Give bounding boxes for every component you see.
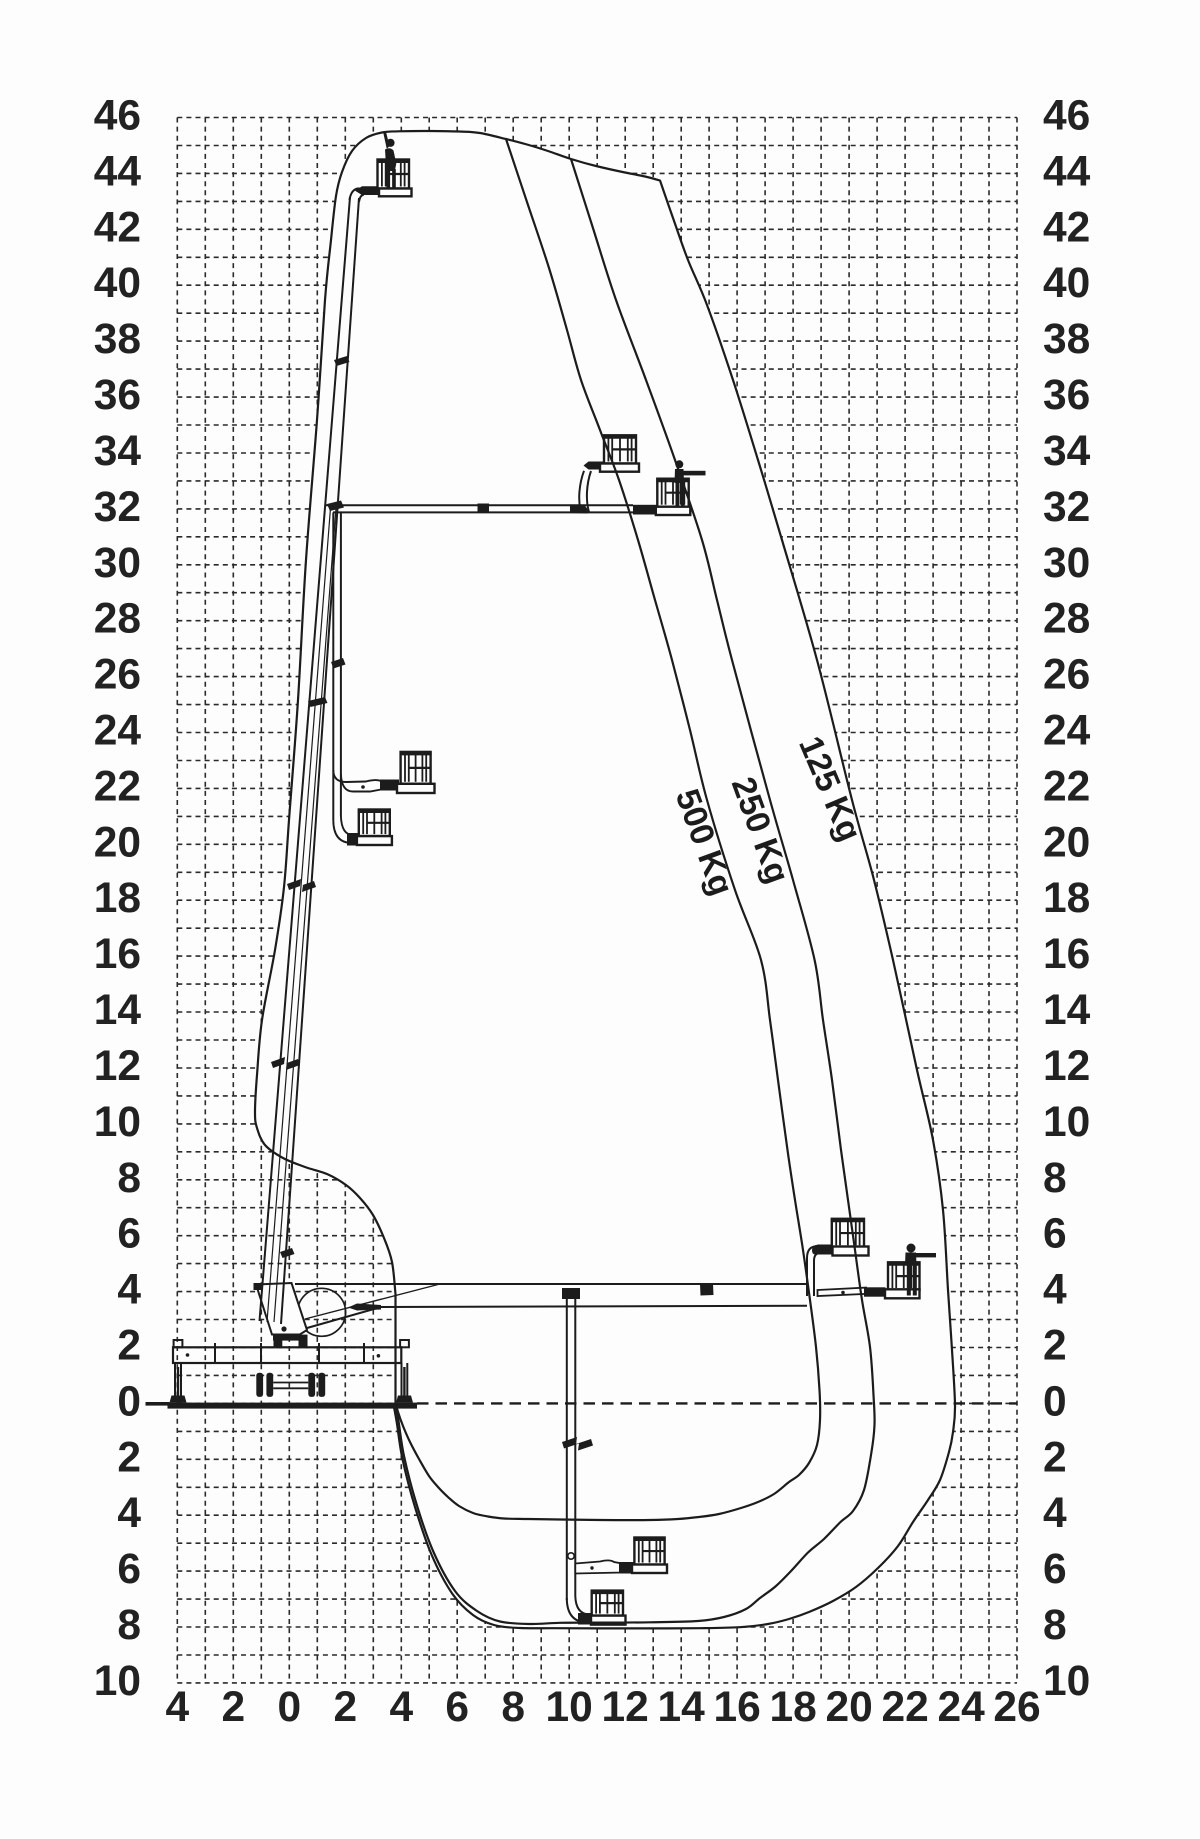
svg-text:46: 46: [94, 93, 141, 140]
svg-text:26: 26: [94, 652, 141, 699]
svg-text:18: 18: [94, 875, 141, 922]
svg-text:0: 0: [1043, 1378, 1067, 1425]
svg-text:20: 20: [94, 819, 141, 866]
svg-text:34: 34: [1043, 428, 1091, 475]
svg-text:18: 18: [1043, 875, 1090, 922]
svg-text:6: 6: [445, 1684, 469, 1731]
svg-text:0: 0: [117, 1378, 141, 1425]
svg-text:4: 4: [1043, 1267, 1067, 1314]
svg-text:12: 12: [94, 1043, 141, 1090]
svg-text:2: 2: [117, 1434, 141, 1481]
svg-text:22: 22: [881, 1684, 928, 1731]
svg-text:10: 10: [94, 1099, 141, 1146]
svg-text:8: 8: [1043, 1602, 1067, 1649]
svg-text:28: 28: [94, 596, 141, 643]
svg-text:16: 16: [713, 1684, 760, 1731]
svg-text:8: 8: [117, 1155, 141, 1202]
svg-text:4: 4: [389, 1684, 413, 1731]
svg-text:14: 14: [1043, 987, 1091, 1034]
svg-text:30: 30: [94, 540, 141, 587]
svg-text:28: 28: [1043, 596, 1090, 643]
svg-text:6: 6: [1043, 1546, 1067, 1593]
svg-text:44: 44: [1043, 148, 1091, 195]
svg-text:6: 6: [1043, 1211, 1067, 1258]
svg-text:10: 10: [546, 1684, 593, 1731]
svg-text:18: 18: [769, 1684, 816, 1731]
svg-text:16: 16: [94, 931, 141, 978]
svg-text:20: 20: [1043, 819, 1090, 866]
svg-text:4: 4: [1043, 1490, 1067, 1537]
svg-text:46: 46: [1043, 93, 1090, 140]
svg-text:2: 2: [221, 1684, 245, 1731]
svg-text:14: 14: [94, 987, 142, 1034]
svg-text:2: 2: [117, 1323, 141, 1370]
svg-text:24: 24: [937, 1684, 985, 1731]
svg-text:44: 44: [94, 148, 142, 195]
svg-text:16: 16: [1043, 931, 1090, 978]
svg-text:4: 4: [117, 1490, 141, 1537]
svg-text:6: 6: [117, 1546, 141, 1593]
svg-text:2: 2: [333, 1684, 357, 1731]
svg-text:12: 12: [1043, 1043, 1090, 1090]
svg-text:32: 32: [94, 484, 141, 531]
svg-text:34: 34: [94, 428, 142, 475]
svg-text:24: 24: [1043, 708, 1091, 755]
svg-text:36: 36: [1043, 372, 1090, 419]
svg-text:4: 4: [165, 1684, 189, 1731]
svg-text:22: 22: [94, 763, 141, 810]
svg-text:40: 40: [94, 260, 141, 307]
svg-text:20: 20: [825, 1684, 872, 1731]
svg-text:2: 2: [1043, 1434, 1067, 1481]
svg-text:42: 42: [1043, 204, 1090, 251]
svg-text:36: 36: [94, 372, 141, 419]
svg-text:32: 32: [1043, 484, 1090, 531]
svg-text:10: 10: [1043, 1099, 1090, 1146]
svg-text:30: 30: [1043, 540, 1090, 587]
svg-text:24: 24: [94, 708, 142, 755]
svg-text:8: 8: [117, 1602, 141, 1649]
svg-text:40: 40: [1043, 260, 1090, 307]
svg-text:38: 38: [94, 316, 141, 363]
svg-text:42: 42: [94, 204, 141, 251]
svg-text:10: 10: [94, 1658, 141, 1705]
svg-text:26: 26: [1043, 652, 1090, 699]
svg-text:26: 26: [993, 1684, 1040, 1731]
svg-text:10: 10: [1043, 1658, 1090, 1705]
svg-text:4: 4: [117, 1267, 141, 1314]
svg-text:2: 2: [1043, 1323, 1067, 1370]
svg-text:14: 14: [658, 1684, 706, 1731]
svg-text:38: 38: [1043, 316, 1090, 363]
svg-text:8: 8: [1043, 1155, 1067, 1202]
svg-text:6: 6: [117, 1211, 141, 1258]
svg-text:8: 8: [501, 1684, 525, 1731]
svg-text:0: 0: [277, 1684, 301, 1731]
svg-text:22: 22: [1043, 763, 1090, 810]
svg-text:12: 12: [602, 1684, 649, 1731]
